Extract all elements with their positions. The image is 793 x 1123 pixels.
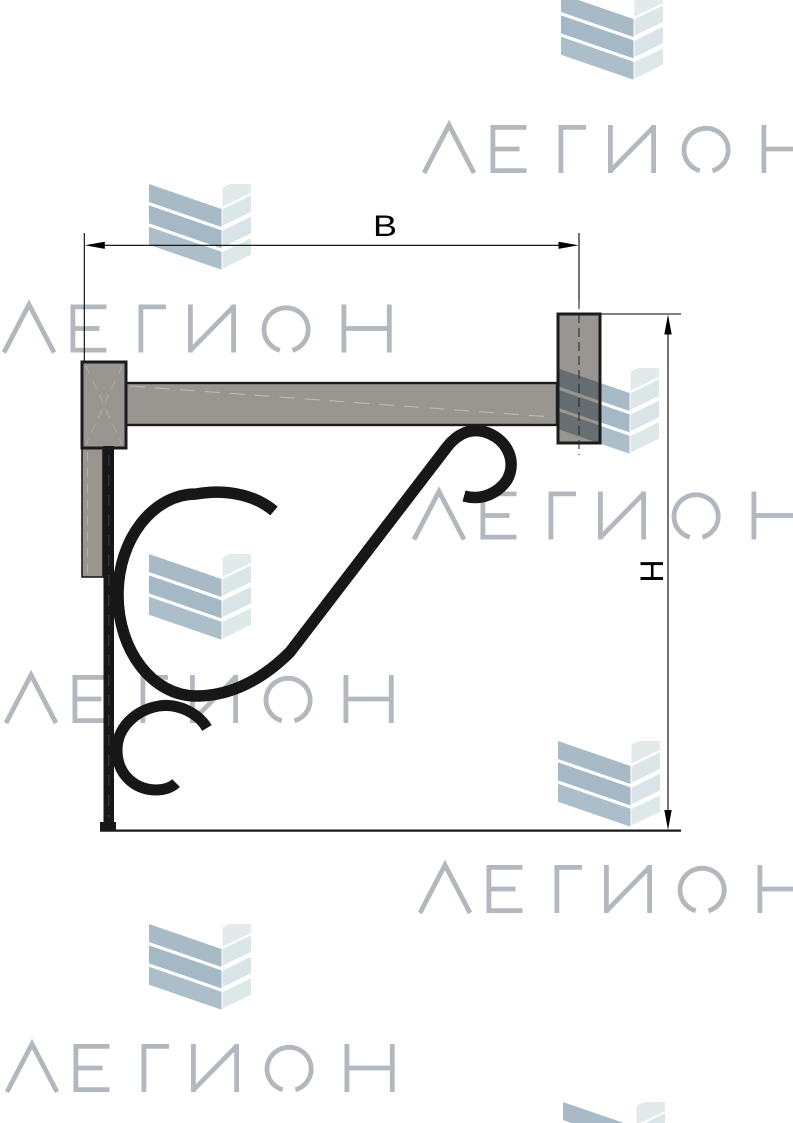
svg-text:Н: Н — [634, 559, 670, 582]
svg-text:В: В — [373, 210, 397, 243]
